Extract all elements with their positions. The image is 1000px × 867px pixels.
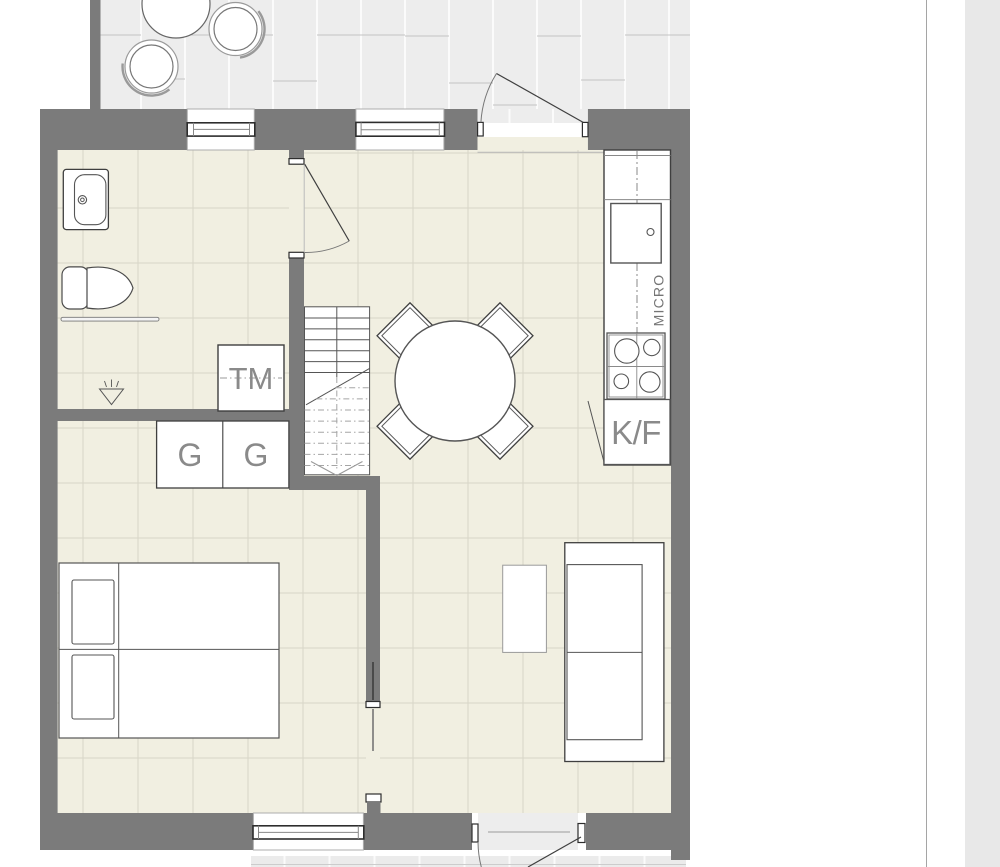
svg-text:K/F: K/F	[611, 414, 661, 451]
svg-text:TM: TM	[229, 361, 274, 396]
svg-text:G: G	[244, 437, 269, 473]
svg-text:G: G	[178, 437, 203, 473]
svg-text:MICRO: MICRO	[651, 274, 667, 327]
